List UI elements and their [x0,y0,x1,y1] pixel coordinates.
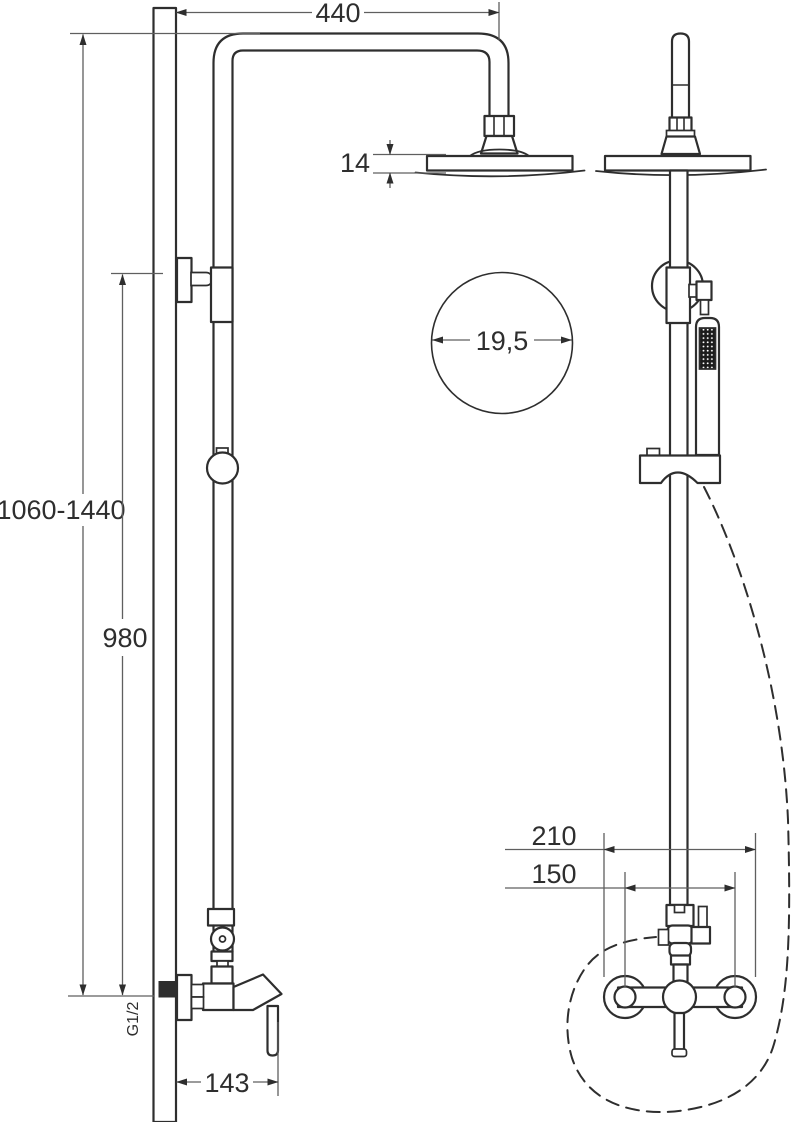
diverter-outlet-right [692,927,711,944]
dim-head-diameter-label: 19,5 [476,326,529,356]
dim-height-range: 1060-1440 [0,34,260,997]
dim-mixer-projection-label: 143 [204,1068,249,1098]
mixer-front [604,976,756,1057]
water-inlet-connection [159,981,177,998]
dim-overall-width: 210 [505,821,756,977]
dim-head-thickness-label: 14 [340,148,370,178]
inlet-thread-label: G1/2 [125,1002,142,1037]
diverter-front [659,905,711,985]
dim-mixer-projection: 143 [177,1022,279,1098]
hand-shower-spray-face [700,328,716,369]
mixer-lever-front [675,1013,685,1051]
hand-shower [696,318,719,455]
dim-column-height-label: 980 [102,623,147,653]
hose-outlet-left [659,930,669,946]
dim-head-diameter: 19,5 [432,273,573,414]
rain-head-disc-side [427,156,573,171]
rain-head-side [416,116,585,176]
head-nut [485,116,515,136]
shower-column-drawing: 440 14 19,5 1060-1440 [0,0,792,1122]
mixer-body-side [203,984,234,1011]
wall-flange-side [177,975,192,1020]
diverter-handle [699,907,708,929]
dim-arm-projection-label: 440 [315,0,360,28]
technical-drawing-page: 440 14 19,5 1060-1440 [0,0,792,1122]
dim-height-range-label: 1060-1440 [0,495,126,525]
lever-base-side [234,975,282,1011]
bracket-clamp-front [667,268,691,324]
mixer-lever-side [268,1006,279,1056]
dim-center-distance-label: 150 [531,859,576,889]
rain-head-disc-front [605,156,751,171]
wall-mounting-plate [154,8,177,1122]
wall-bracket-side [177,258,233,322]
mixer-cartridge-knob [663,981,696,1014]
dim-overall-width-label: 210 [531,821,576,851]
arm-end-on [662,34,701,155]
